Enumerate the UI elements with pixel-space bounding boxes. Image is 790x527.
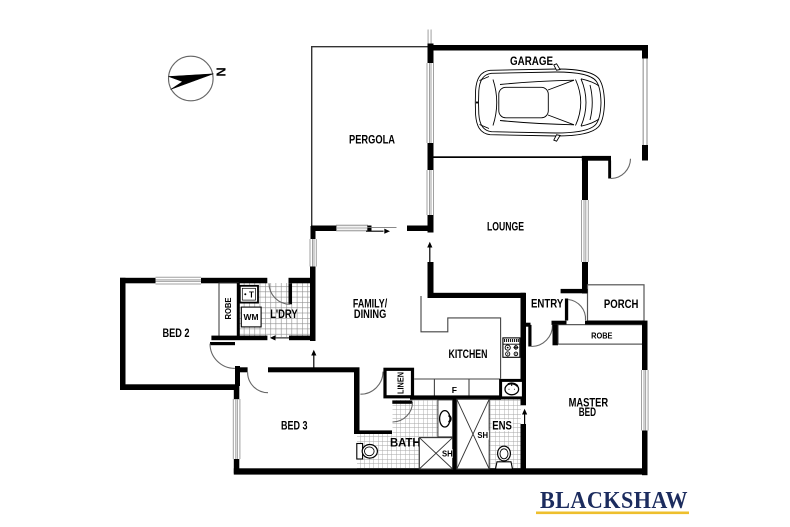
- svg-text:BED: BED: [579, 405, 596, 419]
- svg-text:SH: SH: [477, 430, 488, 440]
- svg-text:LINEN: LINEN: [396, 372, 406, 394]
- svg-text:BLACKSHAW: BLACKSHAW: [540, 488, 688, 514]
- svg-text:ENTRY: ENTRY: [531, 297, 563, 311]
- svg-text:PORCH: PORCH: [604, 297, 639, 311]
- svg-text:BED 2: BED 2: [163, 326, 190, 340]
- svg-text:BED 3: BED 3: [281, 419, 308, 433]
- svg-text:ENS: ENS: [492, 419, 512, 433]
- svg-text:DINING: DINING: [354, 307, 386, 321]
- svg-text:L'DRY: L'DRY: [270, 307, 297, 321]
- svg-text:T: T: [249, 291, 254, 300]
- svg-text:WM: WM: [244, 313, 259, 322]
- svg-text:BATH: BATH: [390, 436, 421, 450]
- svg-text:PERGOLA: PERGOLA: [349, 133, 395, 147]
- svg-text:KITCHEN: KITCHEN: [449, 347, 488, 361]
- svg-text:N: N: [214, 67, 229, 76]
- svg-text:ROBE: ROBE: [591, 331, 613, 341]
- svg-text:LOUNGE: LOUNGE: [487, 219, 524, 233]
- svg-text:F: F: [452, 385, 457, 395]
- svg-text:SH: SH: [442, 449, 453, 459]
- svg-text:ROBE: ROBE: [223, 297, 233, 319]
- svg-text:GARAGE: GARAGE: [510, 54, 553, 68]
